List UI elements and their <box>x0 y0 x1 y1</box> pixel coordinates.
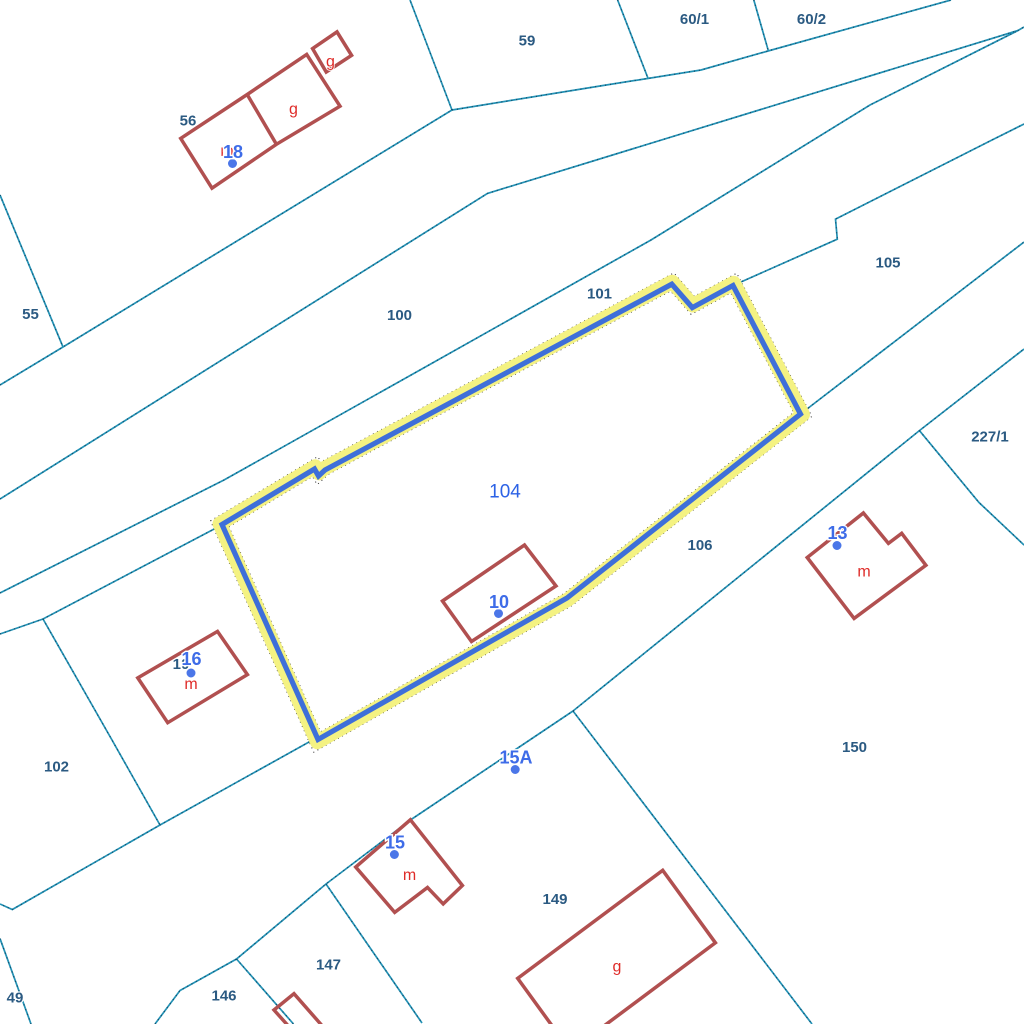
svg-text:55: 55 <box>22 306 39 323</box>
svg-text:147: 147 <box>316 957 341 974</box>
svg-text:56: 56 <box>180 113 197 130</box>
svg-text:100: 100 <box>387 307 412 324</box>
svg-text:15: 15 <box>385 833 405 853</box>
svg-text:149: 149 <box>542 891 567 908</box>
svg-text:102: 102 <box>44 759 69 776</box>
svg-text:m: m <box>857 564 870 581</box>
svg-text:13: 13 <box>827 523 847 543</box>
svg-text:16: 16 <box>181 649 201 669</box>
svg-text:105: 105 <box>875 255 900 272</box>
svg-text:59: 59 <box>519 33 536 50</box>
svg-text:104: 104 <box>489 482 521 503</box>
svg-text:18: 18 <box>223 142 243 162</box>
svg-text:49: 49 <box>7 990 24 1007</box>
svg-text:g: g <box>289 101 298 118</box>
svg-text:g: g <box>613 959 622 976</box>
svg-text:10: 10 <box>489 592 509 612</box>
svg-text:g: g <box>326 54 335 71</box>
svg-text:m: m <box>403 867 416 884</box>
svg-text:106: 106 <box>687 537 712 554</box>
svg-text:60/2: 60/2 <box>797 11 826 28</box>
svg-text:227/1: 227/1 <box>971 429 1009 446</box>
svg-text:15A: 15A <box>499 748 532 768</box>
svg-text:146: 146 <box>211 988 236 1005</box>
svg-text:101: 101 <box>587 286 612 303</box>
svg-text:150: 150 <box>842 739 867 756</box>
svg-text:60/1: 60/1 <box>680 11 709 28</box>
